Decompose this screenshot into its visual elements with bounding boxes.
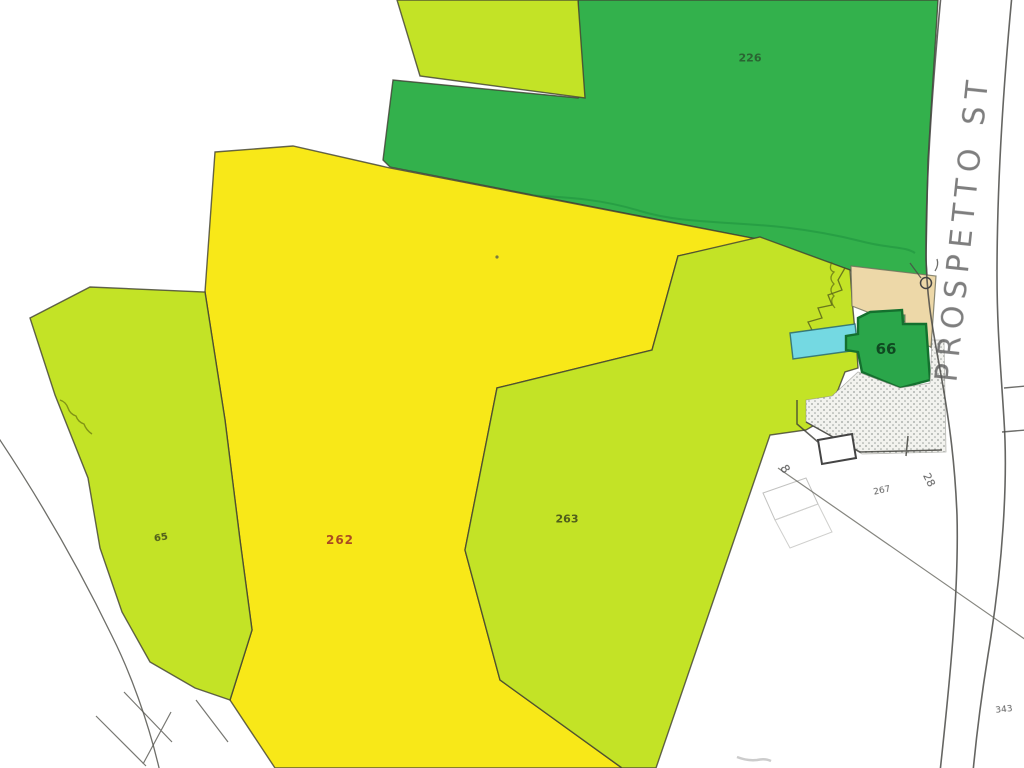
parcel-label-263: 263 — [556, 513, 579, 526]
diagonal-boundary-line — [778, 468, 1024, 640]
parcel-label-66: 66 — [876, 340, 897, 358]
parcel-label-343: 343 — [995, 704, 1013, 716]
parcel-label-262: 262 — [326, 533, 354, 547]
yellow-dot-mark — [495, 255, 498, 258]
parcel-label-226: 226 — [739, 52, 762, 65]
map-canvas: 226 262 263 65 66 267 343 28 8 PROSPETTO… — [0, 0, 1024, 768]
survey-hatch-ticks — [96, 692, 228, 766]
bottom-edge-smudge — [737, 757, 771, 761]
parcel-map — [0, 0, 1024, 768]
building-outline — [818, 434, 856, 464]
faint-quad-2 — [775, 504, 832, 548]
road-side-ticks — [1002, 386, 1024, 432]
